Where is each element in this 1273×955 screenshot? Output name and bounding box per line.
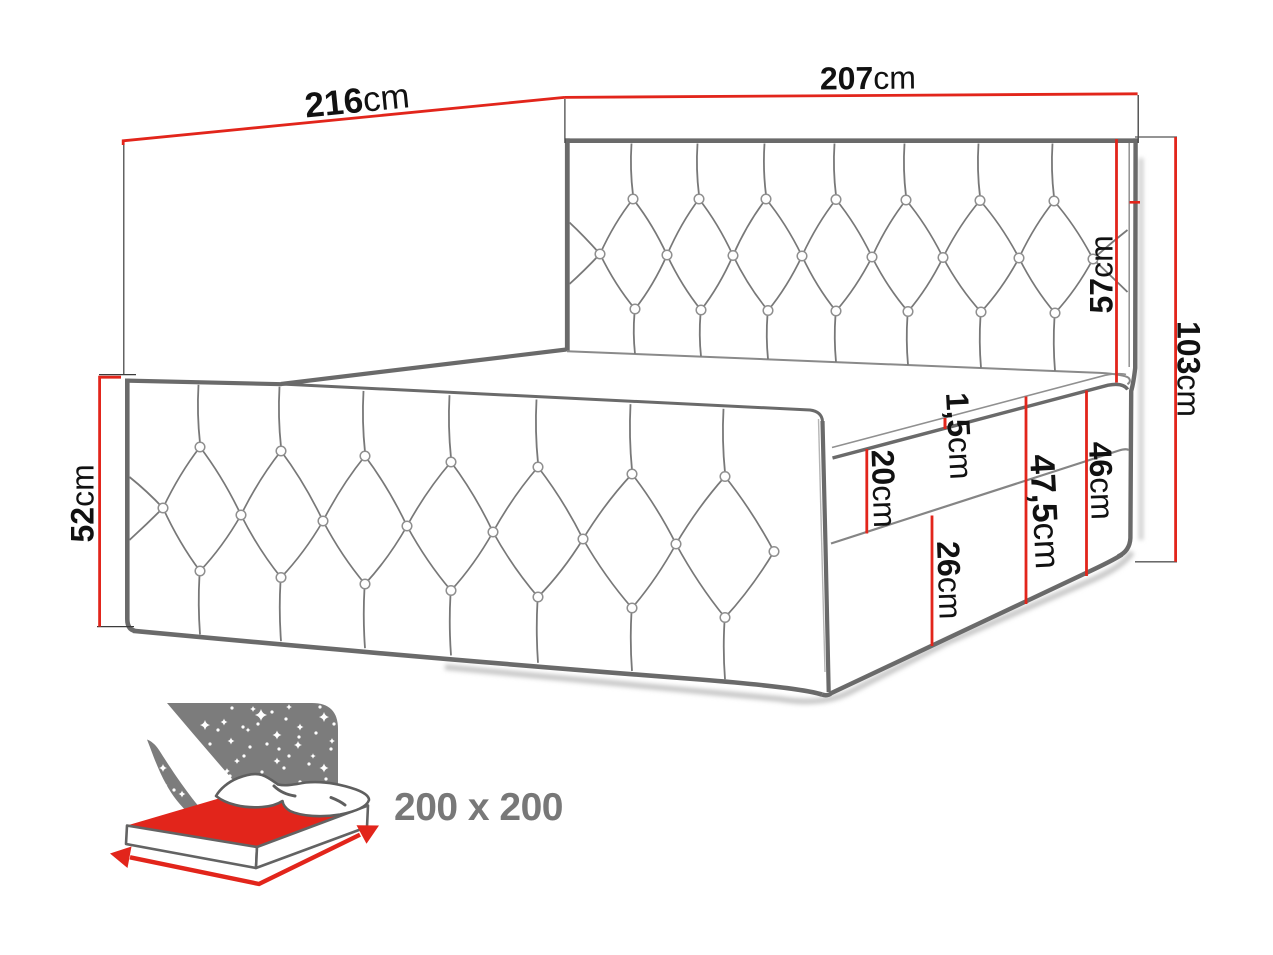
svg-text:103cm: 103cm bbox=[1171, 321, 1207, 417]
svg-text:46cm: 46cm bbox=[1082, 441, 1121, 520]
svg-text:47,5cm: 47,5cm bbox=[1022, 453, 1067, 570]
svg-text:20cm: 20cm bbox=[865, 449, 904, 528]
svg-text:52cm: 52cm bbox=[65, 464, 101, 542]
svg-text:207cm: 207cm bbox=[820, 59, 916, 96]
svg-text:200 x 200: 200 x 200 bbox=[394, 786, 563, 829]
svg-text:1,5cm: 1,5cm bbox=[939, 391, 980, 480]
svg-text:57cm: 57cm bbox=[1084, 235, 1120, 313]
svg-text:26cm: 26cm bbox=[930, 540, 969, 619]
